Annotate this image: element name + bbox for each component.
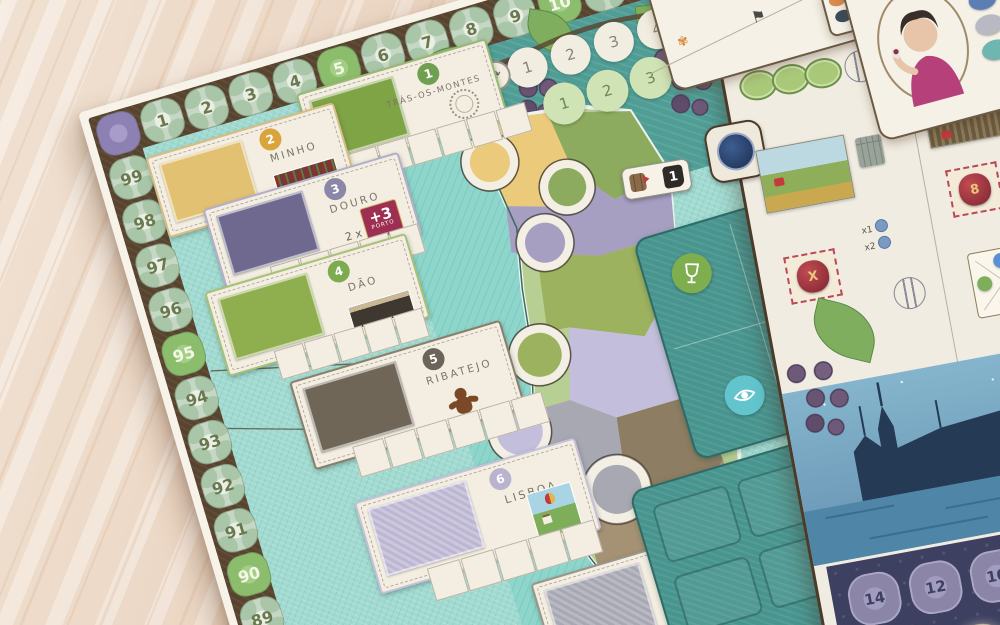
building-token (855, 134, 886, 168)
multiplier-label: x1 (861, 225, 874, 237)
wax-seal-card: X (783, 248, 843, 305)
green-oval-token (802, 55, 845, 91)
green-dot (976, 275, 993, 292)
wax-seal: 8 (956, 171, 993, 208)
landscape-art-card (755, 134, 855, 213)
cellar-coin-9: 9 (948, 619, 1000, 625)
wax-seal: X (794, 258, 831, 295)
cellar-tile-14: 14 (844, 568, 905, 625)
blue-coin-icon (874, 218, 889, 233)
eye-icon (720, 370, 770, 420)
grape-variety-diamond (967, 242, 1000, 319)
wine-glass-icon (667, 248, 717, 298)
silver-coin (891, 274, 928, 311)
photo-of-vinhos-board-game: { "track": { "top": ["1","2","3","4","5"… (0, 0, 1000, 625)
blue-coin-icon (877, 234, 892, 249)
balloon-icon (544, 492, 557, 505)
winemaker-portrait (854, 0, 994, 124)
main-game-board: 12345678910111213 9998979695949392919089… (78, 0, 1000, 625)
cellar-tile-10: 10 (966, 546, 1000, 607)
flower-icon: ✾ (676, 33, 691, 50)
multiplier-label: x2 (864, 241, 877, 253)
blue-dot (992, 252, 1000, 269)
wax-seal-card: 8 (945, 161, 1000, 218)
house-icon (542, 515, 553, 524)
pennant-flag-value: 1 (662, 164, 685, 189)
barrel-icon (629, 172, 648, 192)
cellar-tile-12: 12 (905, 557, 966, 618)
